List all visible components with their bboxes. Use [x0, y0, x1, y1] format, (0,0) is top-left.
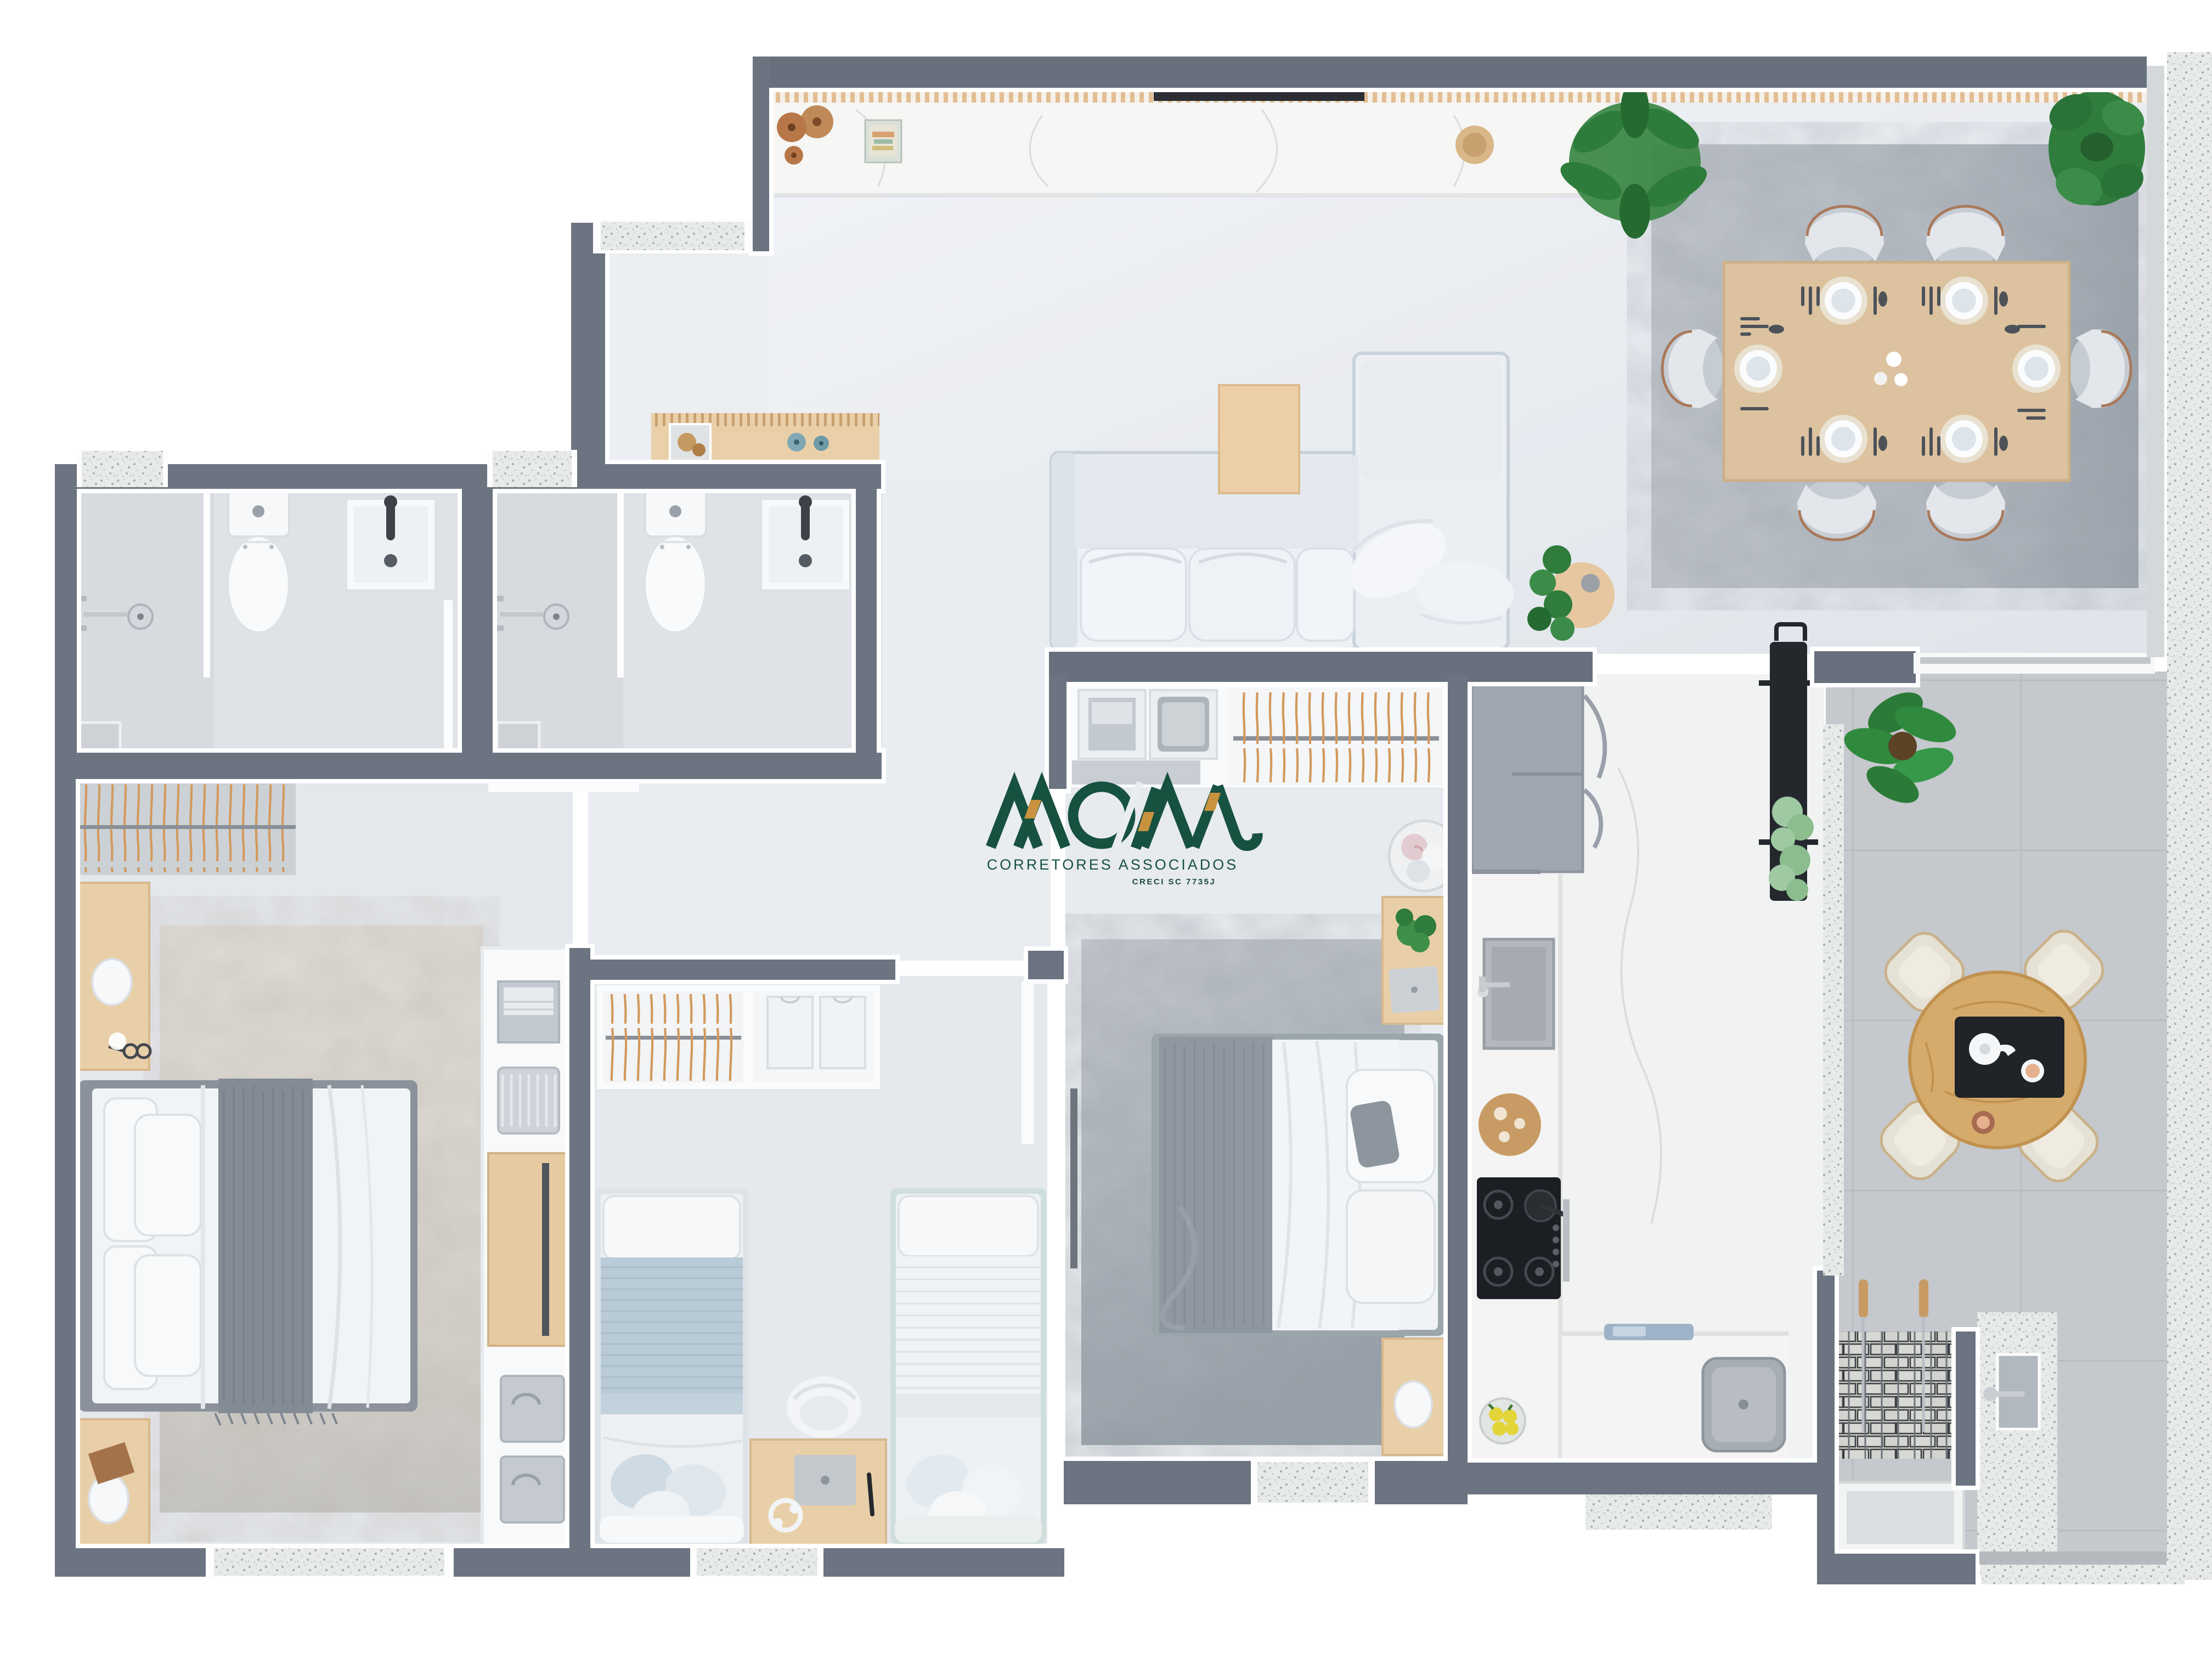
svg-text:CORRETORES ASSOCIADOS: CORRETORES ASSOCIADOS	[987, 856, 1239, 873]
svg-text:CRECI SC 7735J: CRECI SC 7735J	[1132, 877, 1216, 887]
